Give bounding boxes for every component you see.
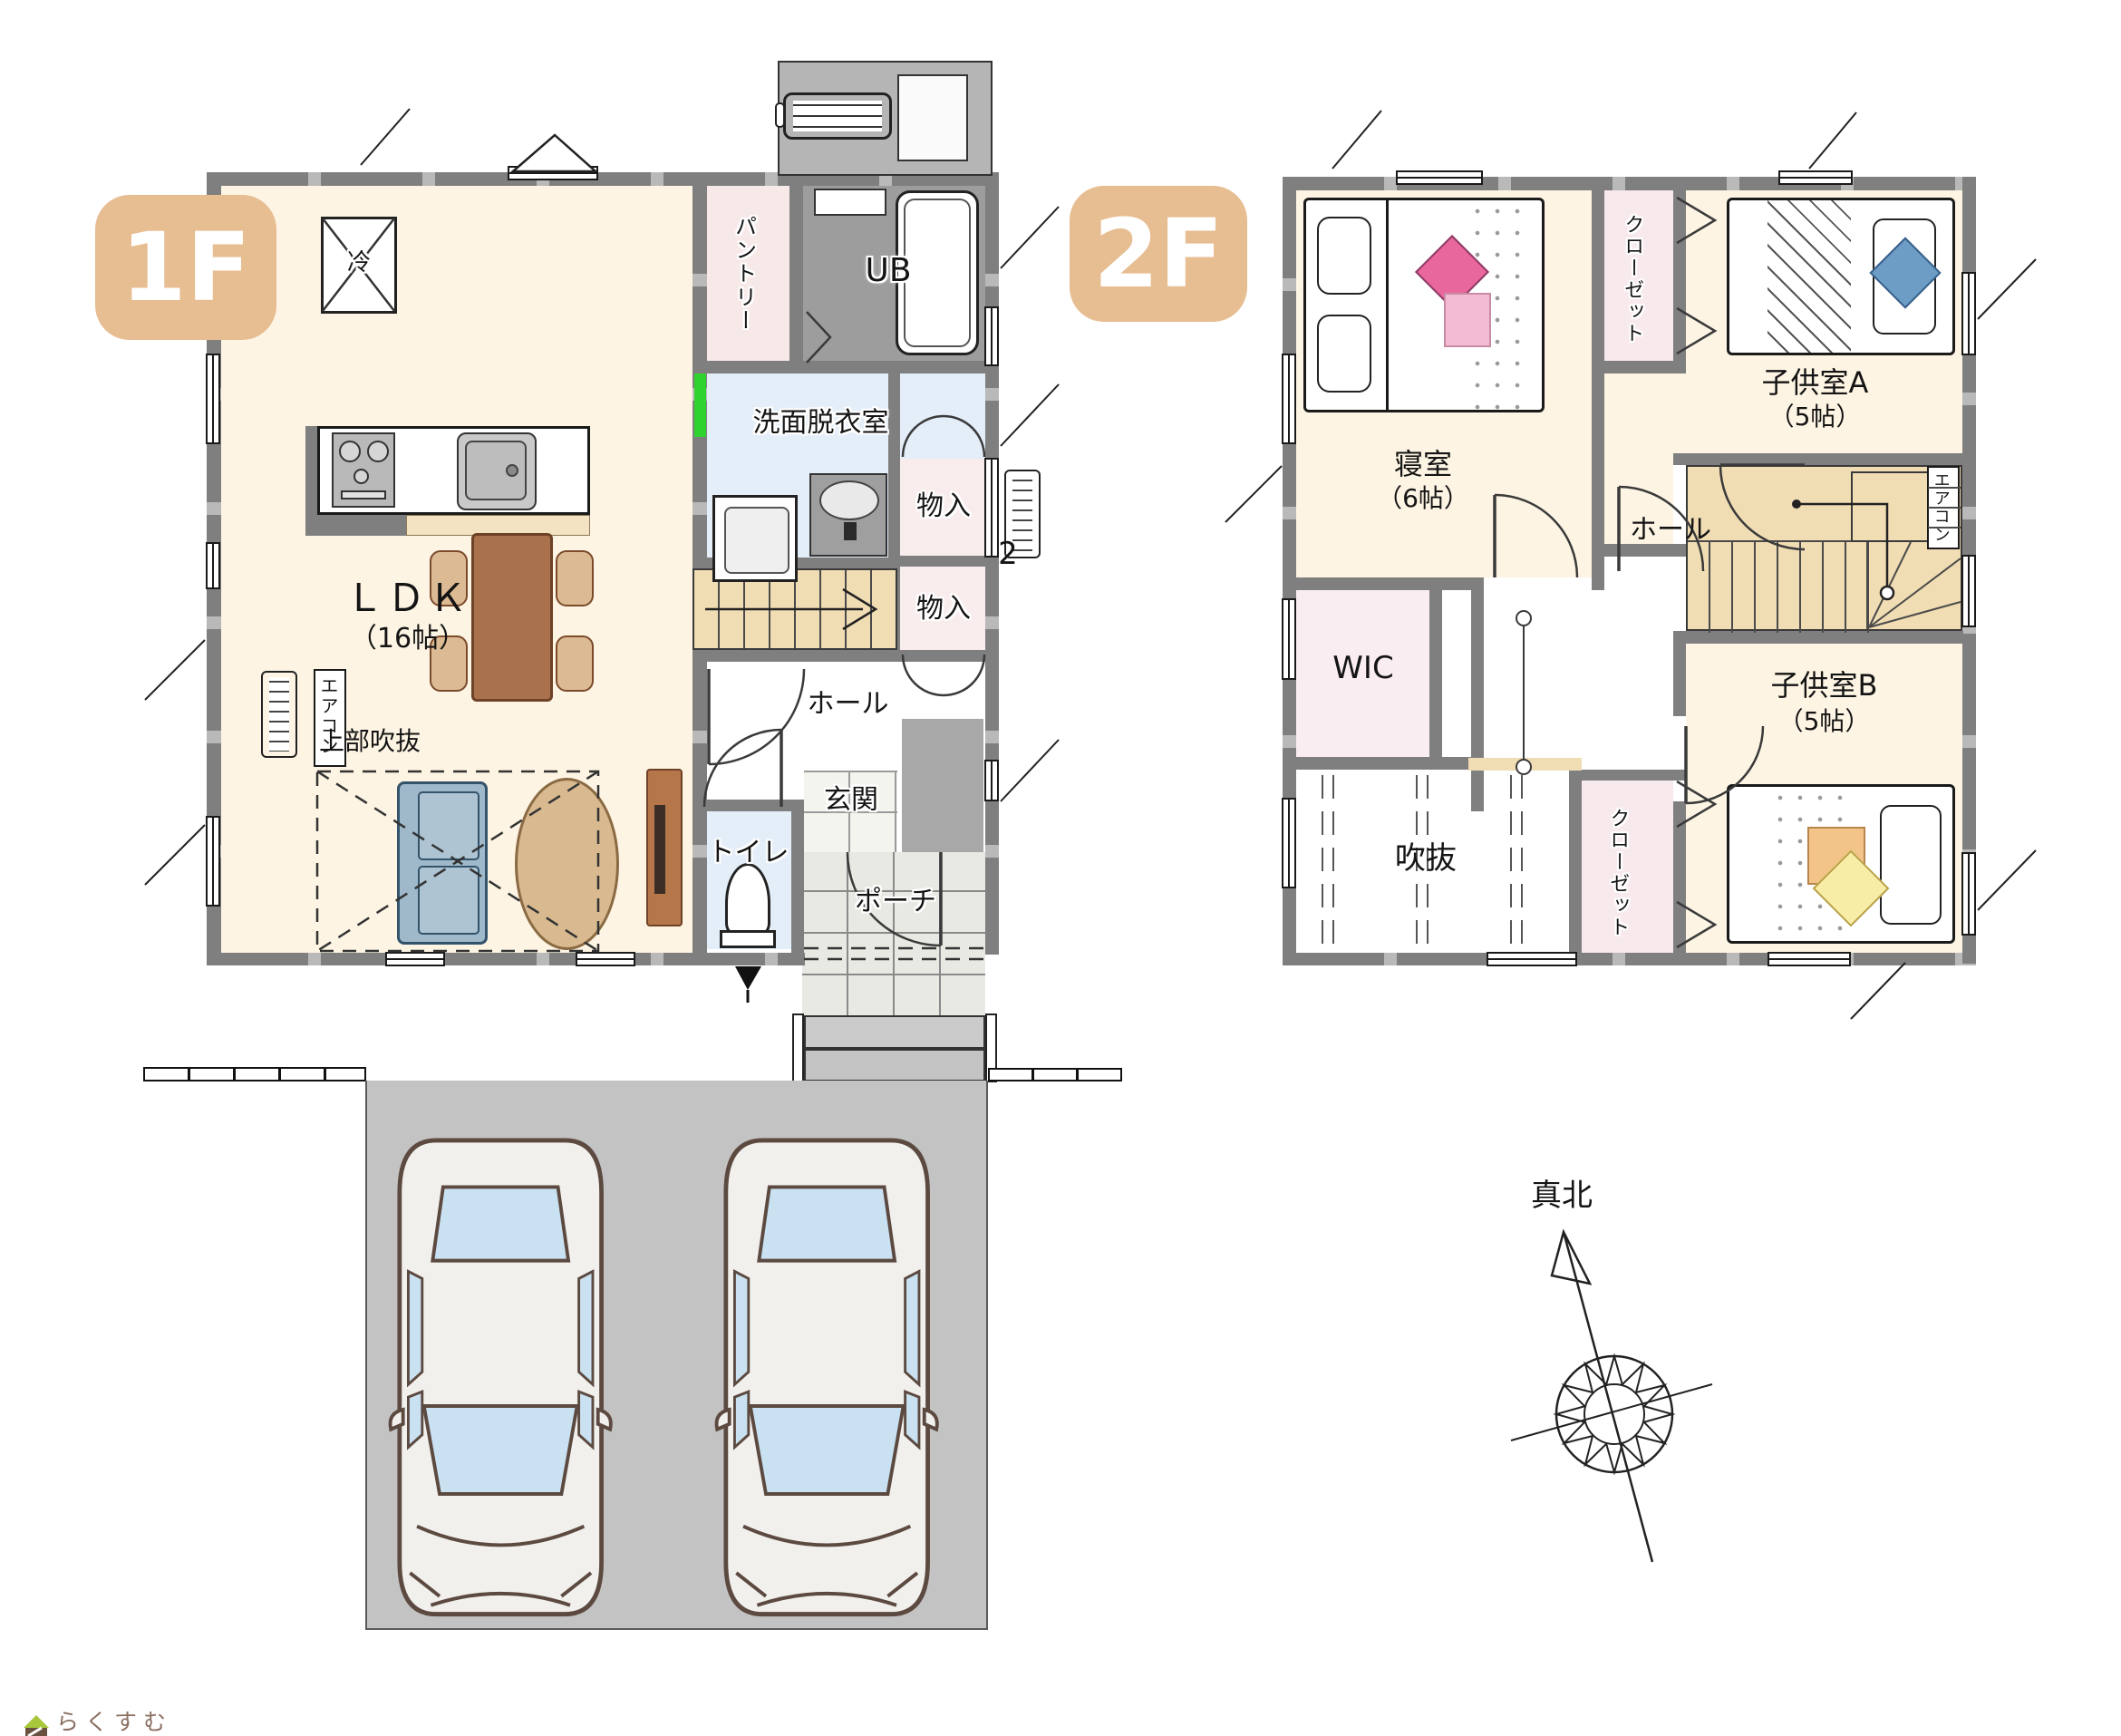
room-label-toilet: トイレ — [705, 838, 791, 869]
vanity-basin — [819, 480, 879, 520]
room-label-pantry: パントリー — [731, 201, 756, 346]
chair — [556, 635, 594, 692]
window — [385, 952, 445, 966]
wall — [1673, 453, 1963, 465]
sofa-cushion — [418, 866, 479, 935]
room-label-storage-upper: 物入 — [906, 491, 981, 523]
aircon-label: エアコン — [1931, 471, 1950, 544]
wall — [317, 515, 406, 536]
room-label-kids-a: 子供室A — [1740, 366, 1890, 400]
logo-text: らくすむ — [56, 1710, 256, 1736]
cushion-light-pink — [1444, 293, 1491, 347]
floor2-badge: 2F — [1070, 186, 1247, 322]
wall — [1283, 577, 1484, 590]
stove — [332, 432, 395, 508]
water-tank-unit — [897, 74, 968, 161]
burner — [353, 469, 369, 484]
fence — [988, 1068, 1122, 1081]
burner — [367, 441, 389, 462]
kitchen-sink — [457, 432, 537, 510]
window — [1778, 170, 1853, 185]
blanket-hatch — [1767, 200, 1851, 353]
window — [1396, 170, 1483, 185]
wall — [1471, 590, 1484, 811]
floor-plan-image: 1F — [0, 0, 2121, 1736]
porch-step — [804, 1049, 985, 1081]
window — [508, 166, 598, 180]
window — [1767, 952, 1851, 966]
logo-house-icon — [24, 1715, 49, 1736]
window — [206, 542, 220, 589]
toilet-bowl — [725, 863, 770, 939]
heat-pump-pipe — [775, 102, 785, 128]
wall — [692, 650, 999, 662]
wall — [1283, 953, 1976, 965]
wall — [1569, 770, 1582, 953]
window — [1961, 272, 1976, 355]
window — [206, 354, 220, 444]
washing-machine — [712, 495, 798, 582]
door-opening — [984, 306, 999, 366]
room-label-void-2f: 吹抜 — [1376, 841, 1476, 877]
rug — [515, 778, 619, 950]
room-label-bedroom-size: （6帖） — [1360, 484, 1487, 513]
wall — [888, 556, 999, 567]
washer-lid — [724, 507, 789, 574]
room-label-ldk-size: （16帖） — [340, 624, 476, 655]
room-label-kids-b-size: （5帖） — [1749, 707, 1899, 736]
window — [1961, 852, 1976, 936]
tv-board — [646, 769, 683, 926]
staircase-2f — [1686, 465, 1962, 631]
window — [1282, 798, 1296, 888]
room-label-genkan: 玄関 — [818, 785, 884, 817]
grid-number: 2 — [990, 537, 1026, 572]
room-label-wic: WIC — [1322, 651, 1405, 686]
room-label-porch: ポーチ — [848, 887, 943, 918]
wall — [1592, 177, 1604, 590]
wall — [305, 426, 317, 536]
wall — [1283, 757, 1484, 770]
window — [1282, 598, 1296, 680]
window — [206, 816, 220, 907]
compass-icon — [1511, 1232, 1712, 1562]
room-porch — [802, 852, 985, 1015]
room-label-storage-lower: 物入 — [906, 594, 981, 626]
wall — [1673, 801, 1686, 953]
porch-step — [804, 1015, 985, 1049]
wall — [1592, 361, 1686, 373]
bed-single-a — [1727, 198, 1955, 355]
vent-mark-icon — [735, 966, 761, 1003]
wall — [1673, 644, 1686, 716]
room-label-kids-b: 子供室B — [1749, 669, 1899, 703]
wall — [791, 800, 804, 953]
stair-railing — [1851, 471, 1931, 542]
wall — [1283, 177, 1976, 190]
grill — [341, 490, 386, 499]
faucet — [506, 464, 518, 477]
toilet-tank — [720, 930, 776, 948]
window — [576, 952, 635, 966]
wall — [207, 953, 805, 965]
room-label-fridge: 冷 — [332, 250, 386, 277]
vanity — [809, 473, 887, 557]
wall — [692, 800, 804, 811]
pillow — [1317, 315, 1371, 393]
wall — [789, 172, 803, 373]
room-label-bedroom: 寝室 — [1360, 448, 1487, 481]
window — [1961, 555, 1976, 627]
floor1-badge: 1F — [95, 195, 276, 340]
dining-table — [471, 533, 553, 702]
pillow — [1317, 217, 1371, 295]
bed-single-b — [1727, 784, 1955, 944]
room-label-hall-1f: ホール — [796, 689, 900, 721]
room-label-ub: UB — [843, 252, 934, 289]
ac-outdoor-unit — [261, 671, 297, 758]
floor-edge — [1468, 758, 1582, 771]
sofa — [397, 781, 488, 945]
green-wall-marker — [694, 373, 706, 437]
shoe-cabinet — [902, 719, 983, 852]
room-label-washroom: 洗面脱衣室 — [723, 408, 918, 440]
sofa-cushion — [418, 791, 479, 860]
wall — [692, 361, 999, 373]
bath-counter — [814, 189, 886, 216]
chair — [556, 550, 594, 606]
room-label-kids-a-size: （5帖） — [1740, 402, 1890, 432]
wall — [1673, 177, 1686, 373]
stair-treads — [1688, 542, 1869, 633]
room-label-closet-bottom: クローゼット — [1606, 796, 1629, 950]
wall — [1429, 590, 1442, 757]
window — [1282, 354, 1296, 444]
wall — [1569, 770, 1686, 781]
wall — [1673, 631, 1963, 644]
step-rail — [792, 1013, 804, 1082]
room-label-void-above: 上部吹抜 — [306, 727, 433, 756]
driveway — [365, 1081, 988, 1630]
north-label: 真北 — [1512, 1178, 1612, 1214]
bed-double — [1303, 198, 1545, 412]
burner — [339, 441, 361, 462]
fence — [143, 1067, 366, 1081]
pillow — [1880, 805, 1942, 925]
window — [1487, 952, 1577, 966]
heat-pump-unit — [783, 92, 892, 140]
room-label-closet-top: クローゼット — [1621, 207, 1643, 352]
tv — [654, 805, 665, 894]
window — [984, 760, 999, 801]
blanket-edge — [1386, 200, 1389, 410]
room-label-hall-2f: ホール — [1612, 515, 1729, 547]
vanity-tap — [844, 522, 857, 540]
room-label-ldk: ＬＤＫ — [340, 577, 476, 620]
